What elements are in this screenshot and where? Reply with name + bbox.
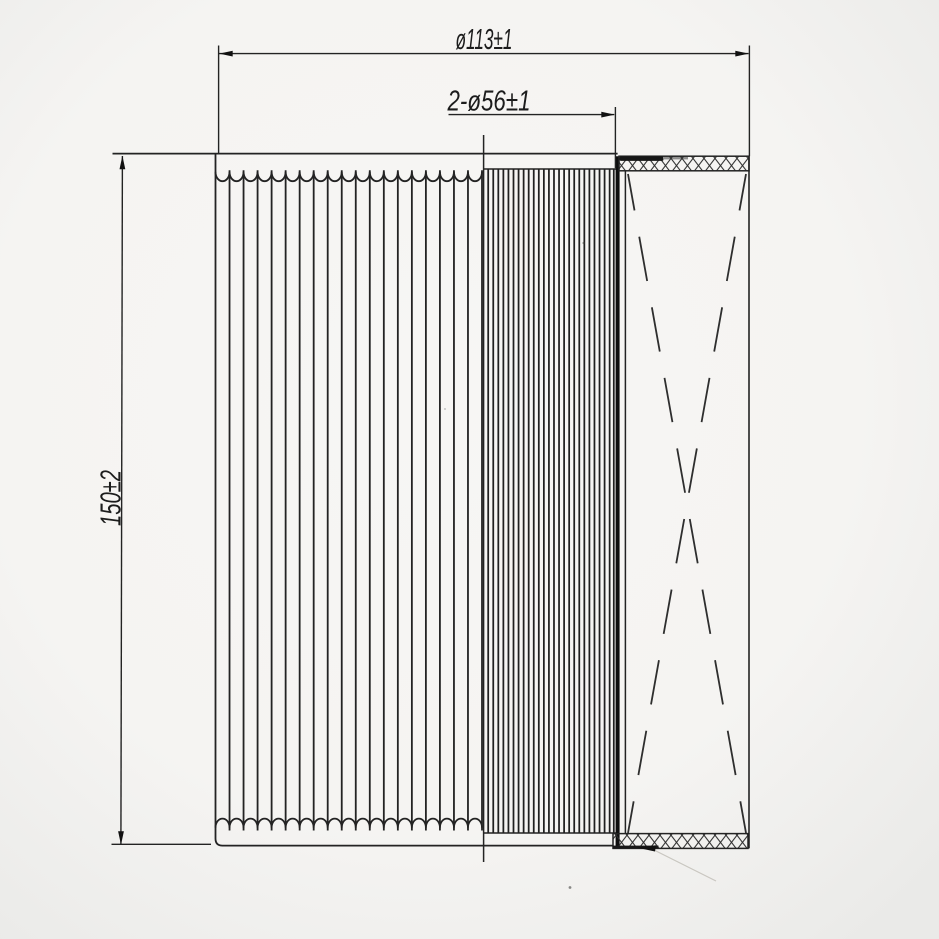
svg-text:150±2: 150±2 — [95, 470, 127, 526]
svg-text:2-ø56±1: 2-ø56±1 — [447, 85, 531, 117]
svg-text:ø113±1: ø113±1 — [456, 24, 513, 56]
